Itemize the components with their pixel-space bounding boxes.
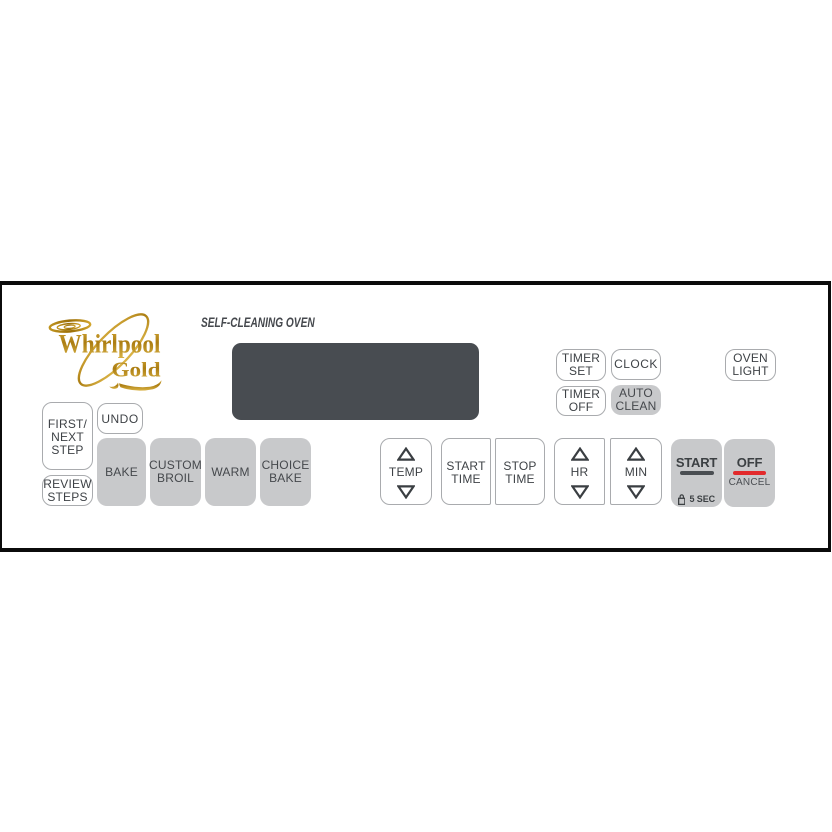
svg-text:Whirlpool: Whirlpool xyxy=(59,330,161,359)
svg-text:Gold: Gold xyxy=(112,358,161,382)
